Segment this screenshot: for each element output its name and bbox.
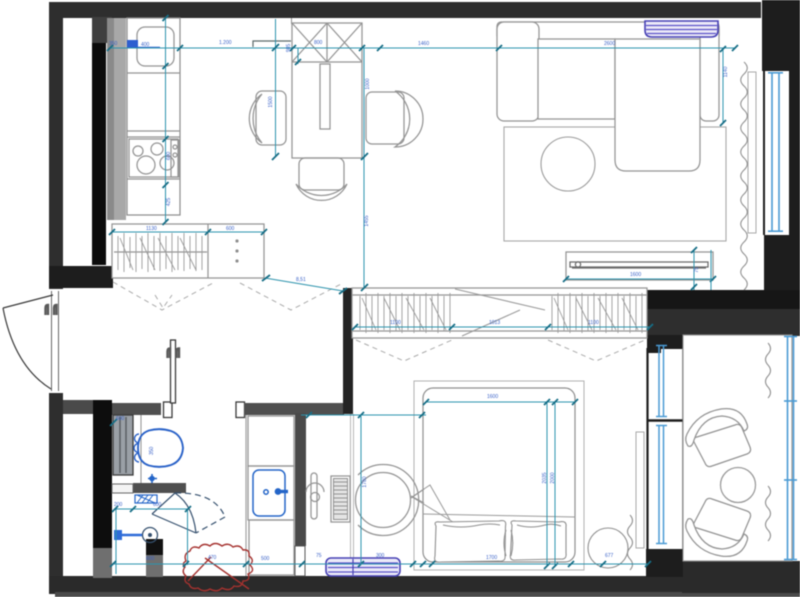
svg-text:400: 400 (141, 42, 150, 48)
svg-text:600: 600 (116, 416, 125, 422)
svg-text:75: 75 (694, 267, 700, 273)
svg-text:1.200: 1.200 (219, 40, 232, 46)
svg-text:677: 677 (605, 553, 614, 559)
svg-text:600: 600 (146, 556, 155, 562)
svg-text:1130: 1130 (146, 226, 157, 232)
svg-text:1100: 1100 (588, 320, 599, 326)
svg-text:600: 600 (226, 226, 235, 232)
svg-text:1700: 1700 (486, 555, 497, 561)
svg-text:75: 75 (316, 553, 322, 559)
svg-text:500: 500 (261, 556, 270, 562)
svg-text:1600: 1600 (487, 394, 498, 400)
svg-text:1100: 1100 (390, 320, 401, 326)
svg-text:800: 800 (314, 40, 323, 46)
svg-text:985: 985 (286, 44, 292, 53)
svg-text:8,51: 8,51 (296, 277, 306, 283)
svg-text:2000: 2000 (550, 472, 556, 483)
svg-text:1780: 1780 (362, 476, 368, 487)
svg-text:1455: 1455 (364, 215, 370, 226)
svg-text:300: 300 (376, 553, 385, 559)
svg-text:1140: 1140 (723, 66, 729, 77)
svg-text:2600: 2600 (604, 41, 615, 47)
svg-text:425: 425 (166, 198, 172, 207)
svg-text:600: 600 (153, 502, 162, 508)
svg-text:350: 350 (149, 446, 155, 455)
svg-text:470: 470 (208, 555, 217, 561)
svg-text:2035: 2035 (542, 472, 548, 483)
svg-text:1013: 1013 (489, 320, 500, 326)
svg-text:1460: 1460 (418, 41, 429, 47)
svg-text:200: 200 (114, 502, 123, 508)
svg-text:1500: 1500 (268, 96, 274, 107)
svg-text:1000: 1000 (365, 78, 371, 89)
svg-text:600: 600 (166, 152, 172, 161)
svg-text:1600: 1600 (630, 272, 641, 278)
svg-text:350: 350 (109, 41, 118, 47)
